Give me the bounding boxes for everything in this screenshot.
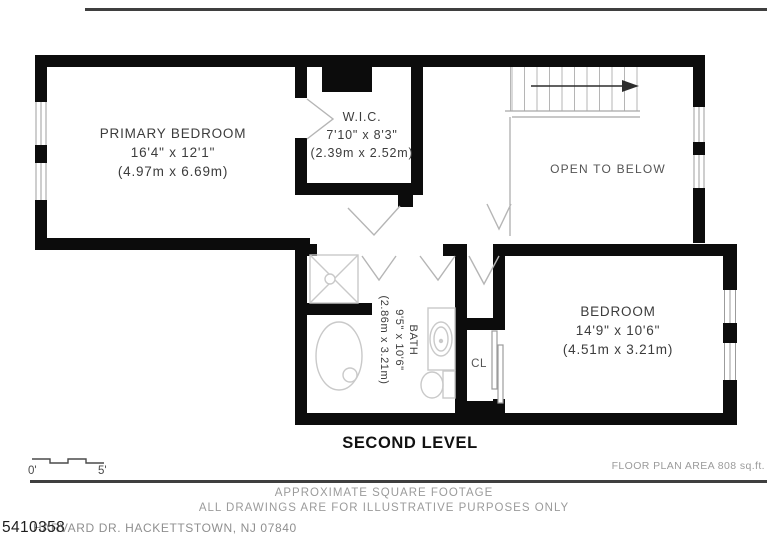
window-bedroom-2 [725,343,736,380]
level-title: SECOND LEVEL [310,434,510,453]
wic-label: W.I.C. 7'10" x 8'3" (2.39m x 2.52m) [292,109,432,162]
wall-chimney-block [322,62,372,92]
disclaimer-line-1: APPROXIMATE SQUARE FOOTAGE [0,487,768,499]
wall-bottom [295,413,737,425]
address-text: HARVARD DR. HACKETTSTOWN, NJ 07840 [33,521,297,535]
disclaimer-line-2: ALL DRAWINGS ARE FOR ILLUSTRATIVE PURPOS… [0,502,768,514]
top-rule [85,8,767,11]
room-dims-ft: 14'9" x 10'6" [518,321,718,340]
wall-shower-bottom [307,303,372,315]
wall-closet-top [467,318,505,330]
room-dims-m: (4.51m x 3.21m) [518,340,718,359]
room-dims-ft: 9'5" x 10'6" [391,265,405,415]
wall-closet-bottom [467,401,505,413]
wall-wic-left-a [295,55,307,98]
scale-bar-line [32,459,104,463]
window-left-2 [36,163,46,200]
wall-primary-bottom [35,238,310,250]
wall-bath-left [295,250,307,425]
bathtub-icon [316,322,362,390]
hall-door-arc [348,206,400,235]
room-name: BEDROOM [518,302,718,321]
toilet-icon [421,371,455,398]
landing-door-arc [487,204,511,229]
window-left-1 [36,102,46,145]
bottom-rule [30,480,767,483]
room-name: PRIMARY BEDROOM [63,124,283,143]
open-to-below-label: OPEN TO BELOW [508,162,708,176]
window-bedroom-1 [725,290,736,323]
primary-bedroom-label: PRIMARY BEDROOM 16'4" x 12'1" (4.97m x 6… [63,124,283,181]
wall-hall-door-stub [398,195,413,207]
stairs-direction-arrow [531,80,639,92]
window-right-upper-1 [694,107,704,142]
closet-label: CL [463,358,495,370]
wall-bedroom-right-b [723,323,737,343]
scale-end-label: 5' [98,465,107,477]
sink-vanity-icon [428,308,455,370]
wall-left-a [35,55,47,102]
room-dims-m: (2.39m x 2.52m) [292,145,432,163]
wall-bath-right [455,244,467,425]
room-name: W.I.C. [292,109,432,127]
bath-label: BATH 9'5" x 10'6" (2.86m x 3.21m) [376,265,420,415]
bath-door-right-arc [420,256,455,280]
wall-bedroom-right-a [723,244,737,290]
bedroom-label: BEDROOM 14'9" x 10'6" (4.51m x 3.21m) [518,302,718,359]
floor-plan-page: PRIMARY BEDROOM 16'4" x 12'1" (4.97m x 6… [0,0,768,542]
scale-start-label: 0' [28,465,37,477]
wall-right-upper-a [693,55,705,107]
room-dims-ft: 7'10" x 8'3" [292,127,432,145]
wall-left-b [35,145,47,163]
floor-plan-area-label: FLOOR PLAN AREA 808 sq.ft. [560,460,765,472]
room-dims-m: (4.97m x 6.69m) [63,162,283,181]
room-name: BATH [406,265,420,415]
shower-icon [310,255,358,303]
wall-wic-bottom [295,183,423,195]
listing-number: 5410358 [2,519,65,537]
wall-right-upper-c [693,188,705,243]
wall-right-upper-b [693,142,705,155]
stairs [511,67,638,111]
room-dims-ft: 16'4" x 12'1" [63,143,283,162]
room-dims-m: (2.86m x 3.21m) [377,265,391,415]
wall-bedroom-top [505,244,737,256]
